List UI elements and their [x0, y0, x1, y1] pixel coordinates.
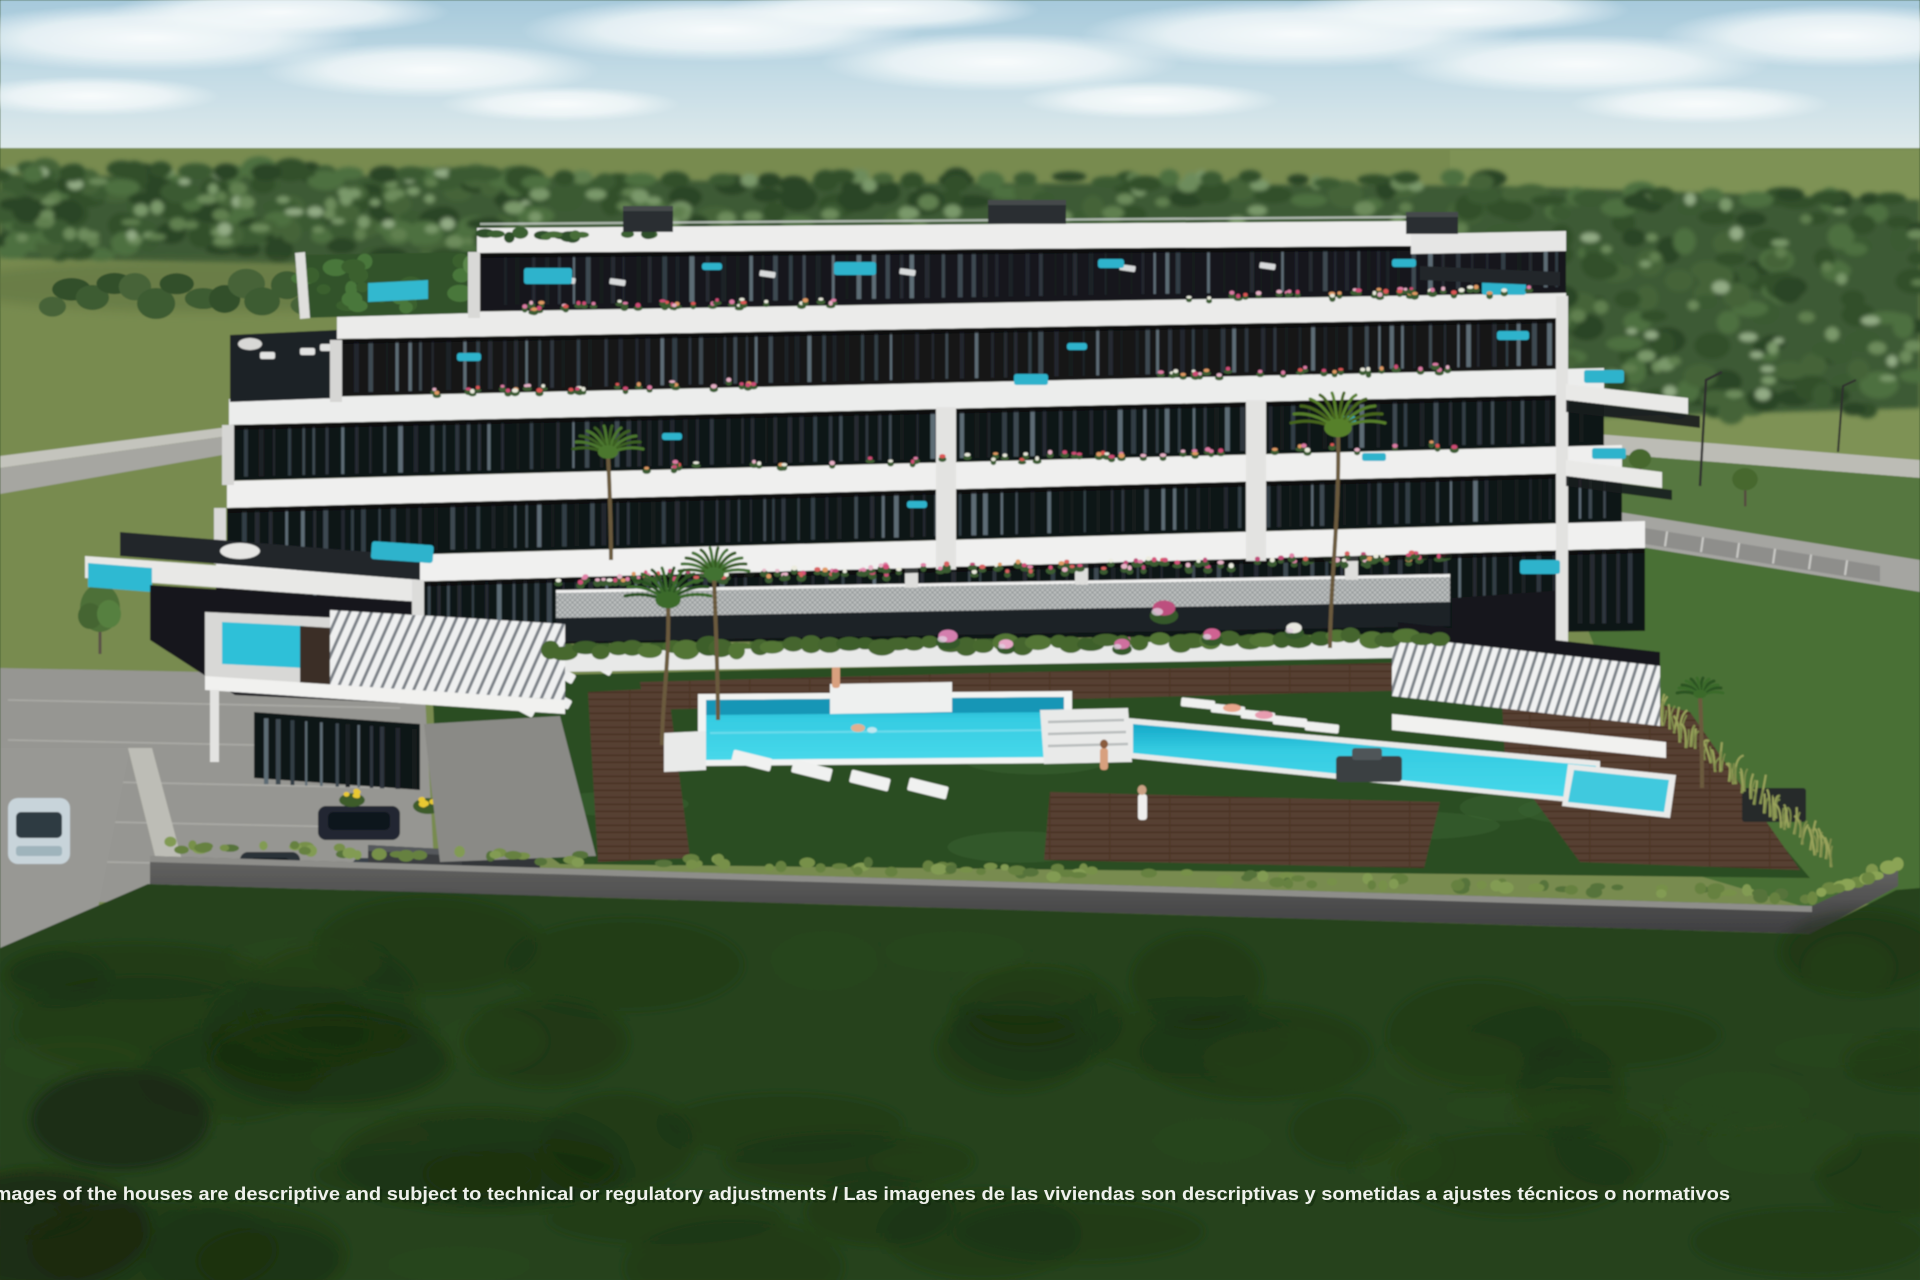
svg-text:images of the houses are descr: images of the houses are descriptive and… [0, 1183, 1730, 1204]
